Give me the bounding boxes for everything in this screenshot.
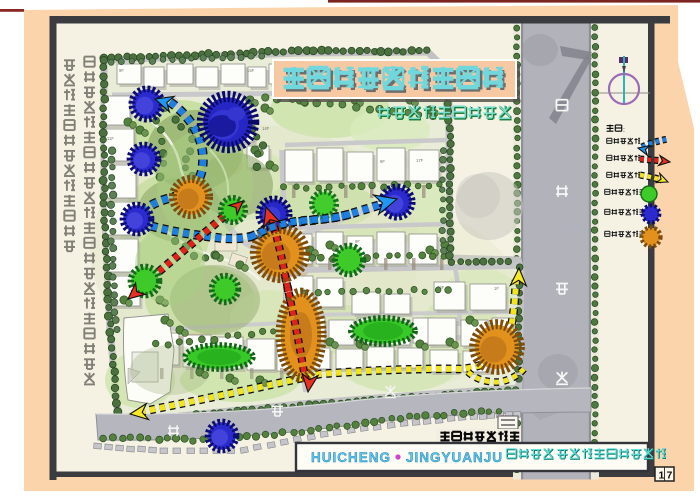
svg-text:9F: 9F — [119, 68, 124, 73]
svg-text:7: 7 — [667, 470, 673, 482]
svg-text:JINGYUANJU: JINGYUANJU — [406, 450, 503, 465]
svg-text:9F: 9F — [355, 239, 360, 244]
svg-text:11F: 11F — [107, 136, 114, 141]
svg-text:14F: 14F — [262, 126, 270, 131]
svg-text:9F: 9F — [380, 159, 385, 164]
svg-text::: : — [623, 127, 625, 134]
svg-text:15F: 15F — [247, 68, 255, 73]
svg-text:17F: 17F — [416, 158, 424, 163]
svg-text:1: 1 — [659, 470, 665, 482]
svg-text:HUICHENG: HUICHENG — [311, 450, 391, 465]
svg-text:1F: 1F — [494, 286, 499, 291]
